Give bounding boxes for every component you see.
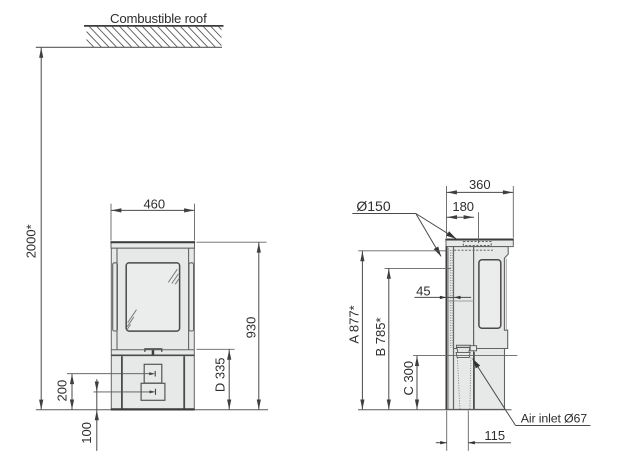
svg-text:360: 360: [469, 177, 491, 192]
svg-text:A 877*: A 877*: [346, 305, 361, 343]
svg-text:B 785*: B 785*: [373, 317, 388, 356]
svg-text:2000*: 2000*: [24, 224, 39, 258]
svg-text:Air inlet Ø67: Air inlet Ø67: [521, 412, 587, 426]
svg-text:100: 100: [79, 422, 94, 444]
svg-text:45: 45: [416, 283, 430, 298]
svg-text:460: 460: [143, 196, 165, 211]
svg-text:D 335: D 335: [213, 357, 228, 392]
svg-text:115: 115: [484, 428, 505, 443]
svg-text:200: 200: [55, 380, 70, 402]
svg-text:Ø150: Ø150: [356, 198, 390, 214]
svg-text:C 300: C 300: [401, 361, 416, 396]
svg-text:930: 930: [243, 317, 258, 339]
svg-text:Combustible roof: Combustible roof: [110, 11, 207, 26]
svg-text:180: 180: [452, 199, 474, 214]
